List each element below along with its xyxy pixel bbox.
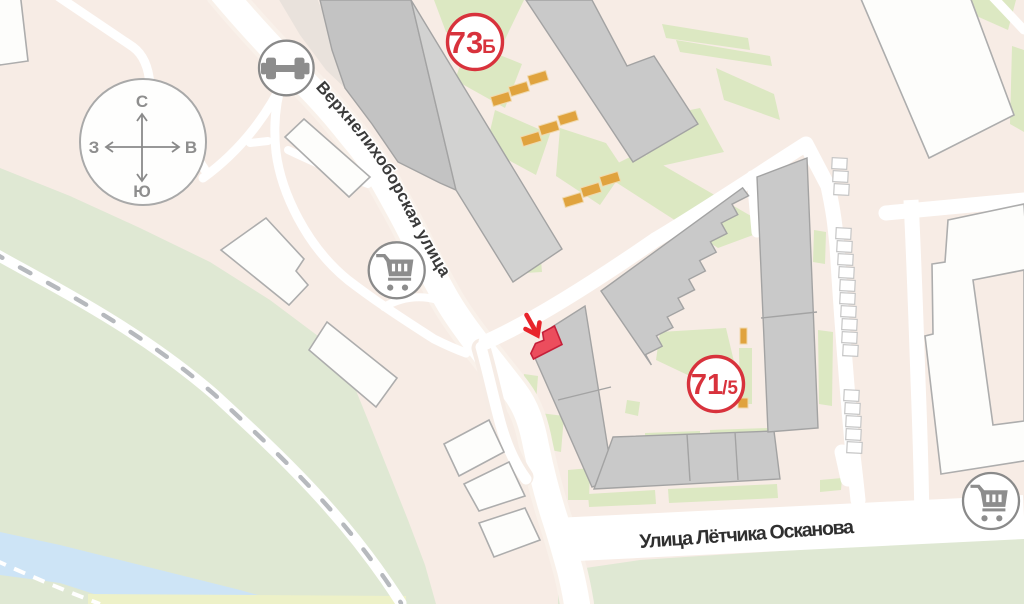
svg-text:Ю: Ю <box>133 182 151 201</box>
svg-text:В: В <box>185 138 197 157</box>
svg-text:З: З <box>89 138 100 157</box>
svg-text:С: С <box>136 92 148 111</box>
svg-text:73: 73 <box>449 25 483 60</box>
svg-text:Б: Б <box>482 37 496 58</box>
svg-text:/5: /5 <box>722 378 738 399</box>
svg-text:71: 71 <box>691 369 723 401</box>
